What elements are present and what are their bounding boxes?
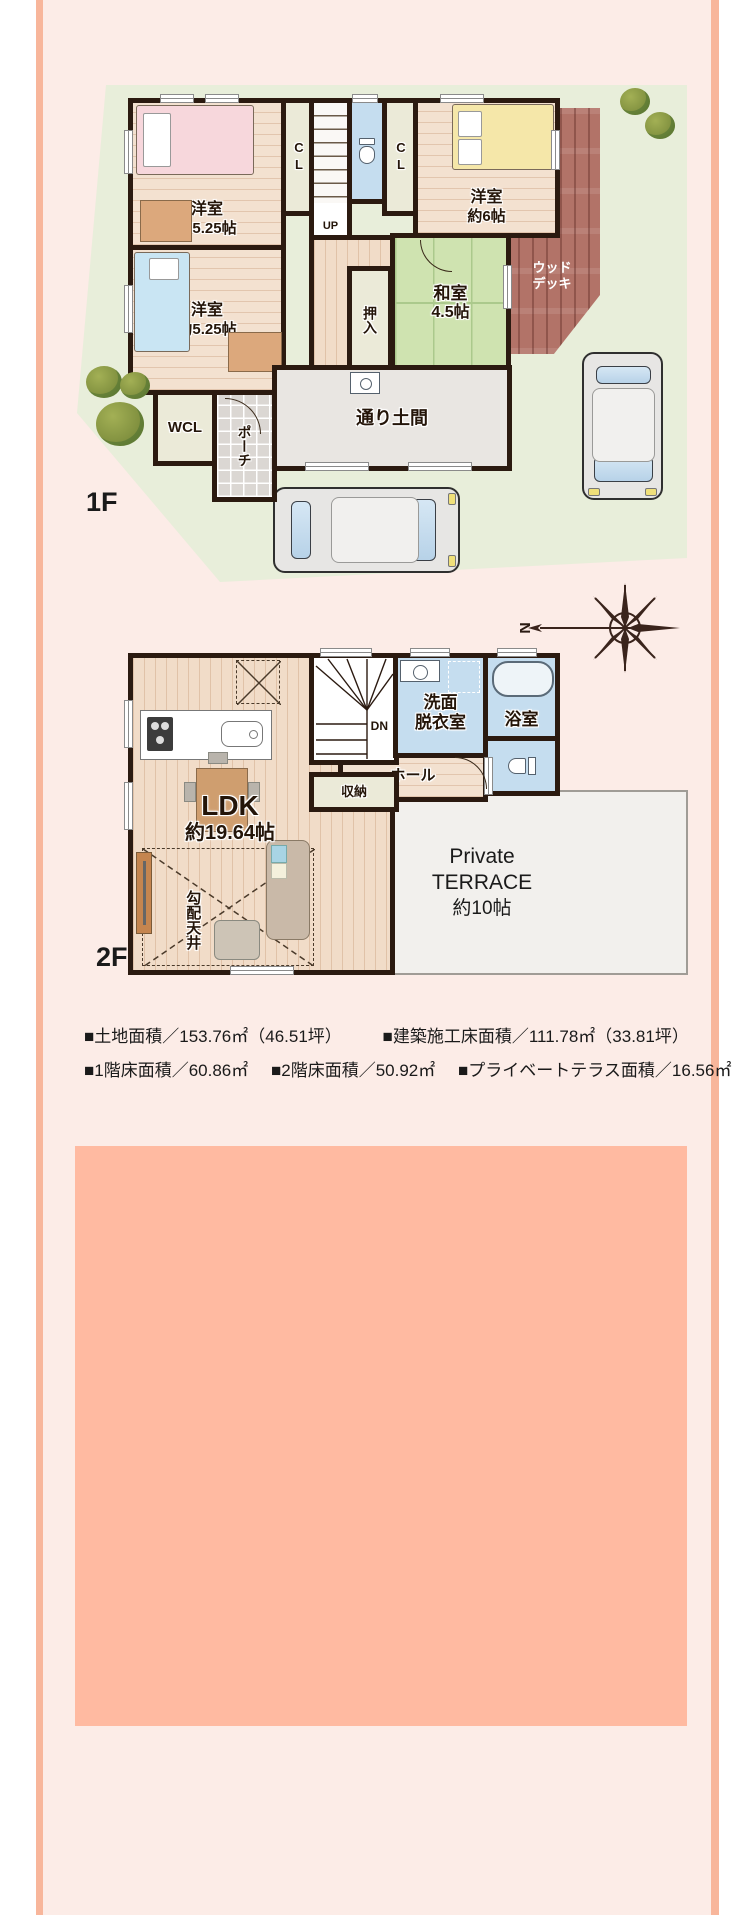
- window: [124, 782, 133, 830]
- window: [230, 966, 294, 975]
- sofa: [266, 840, 310, 940]
- sink-basin-icon: [360, 378, 372, 390]
- tree: [620, 88, 650, 115]
- spec-land-area: ■土地面積／153.76㎡（46.51坪）: [84, 1027, 342, 1046]
- bathroom-label: 浴室: [505, 710, 539, 730]
- sofa-cushion: [271, 863, 287, 879]
- bed-pillow: [458, 111, 482, 137]
- car-headlight: [645, 488, 657, 496]
- car-roof: [592, 388, 655, 462]
- spec-terrace-area: ■プライベートテラス面積／16.56㎡: [458, 1061, 731, 1080]
- wood-deck-label-line1: ウッド: [504, 260, 600, 276]
- spec-2f-floor-area: ■2階床面積／50.92㎡: [271, 1061, 435, 1080]
- terrace-label-line2: TERRACE: [407, 870, 557, 896]
- car-vertical: [582, 352, 663, 500]
- burner-icon: [156, 736, 164, 744]
- spec-1f-floor-area: ■1階床面積／60.86㎡: [84, 1061, 248, 1080]
- room-doma: 通り土間: [272, 365, 512, 471]
- sink-basin-icon: [413, 665, 428, 680]
- chair: [208, 752, 228, 764]
- window: [124, 285, 133, 333]
- private-terrace: Private TERRACE 約10帖: [393, 790, 688, 975]
- window: [503, 265, 512, 309]
- left-accent-strip: [36, 0, 43, 1915]
- room-oshiire: 押入: [347, 266, 393, 373]
- room-toilet-1f: [347, 98, 387, 204]
- compass-north-label: N: [520, 622, 534, 634]
- window: [408, 462, 472, 471]
- window: [497, 648, 537, 657]
- tree: [645, 112, 675, 139]
- area-specs: ■土地面積／153.76㎡（46.51坪） ■建築施工床面積／111.78㎡（3…: [84, 1022, 724, 1090]
- bed-yellow: [452, 104, 554, 170]
- car-roof: [331, 497, 419, 563]
- stairs-dn-label: DN: [371, 720, 388, 734]
- hatch-x: [237, 661, 281, 705]
- sloped-ceiling-label: 勾配天井: [184, 872, 201, 968]
- storage-label: 収納: [341, 785, 367, 800]
- stairs-1f: UP: [309, 98, 352, 240]
- closet-ne-label: CL: [393, 140, 408, 174]
- tree: [96, 402, 144, 446]
- washroom-sink-icon: [400, 660, 440, 682]
- doma-label: 通り土間: [356, 408, 428, 429]
- bedroom-ne-name: 洋室: [470, 189, 502, 207]
- car-headlight: [588, 488, 600, 496]
- stairs-2f-fan: [314, 658, 394, 760]
- closet-nw-label: CL: [291, 140, 306, 174]
- window: [440, 94, 484, 103]
- bed-pink: [136, 105, 254, 175]
- flyer-page: ウッド デッキ 洋室 約5.25帖 CL UP CL: [0, 0, 750, 1915]
- stairs-up-label: UP: [323, 220, 338, 233]
- washitsu-size: 4.5帖: [431, 304, 469, 322]
- bathtub-icon: [492, 661, 554, 697]
- stairs-2f: DN: [309, 653, 399, 765]
- stairs-1f-steps: [314, 103, 347, 203]
- bedroom-ne-size: 約6帖: [467, 208, 505, 225]
- room-wcl: WCL: [153, 390, 217, 466]
- spec-line-1: ■土地面積／153.76㎡（46.51坪） ■建築施工床面積／111.78㎡（3…: [84, 1022, 724, 1047]
- terrace-label-line3: 約10帖: [407, 897, 557, 921]
- bed-pillow: [143, 113, 171, 167]
- bed-blue: [134, 252, 190, 352]
- floor-label-2f: 2F: [96, 942, 128, 973]
- washitsu-name: 和室: [434, 284, 468, 304]
- room-storage-2f: 収納: [309, 772, 399, 812]
- car-rear-window: [291, 501, 311, 559]
- wood-deck-label: ウッド デッキ: [504, 260, 600, 293]
- washroom-label-line1: 洗面: [424, 693, 458, 713]
- car-horizontal: [273, 487, 460, 573]
- ldk-size: 約19.64帖: [160, 822, 300, 845]
- right-accent-strip: [711, 0, 719, 1915]
- bedroom-nw-name: 洋室: [191, 201, 223, 219]
- wood-deck-label-line2: デッキ: [504, 276, 600, 292]
- sofa-cushion: [271, 845, 287, 863]
- ceiling-hatch-square: [236, 660, 280, 704]
- tv-screen: [143, 861, 146, 925]
- bedroom-sw-name: 洋室: [191, 302, 223, 320]
- burner-icon: [151, 722, 159, 730]
- window: [124, 700, 133, 748]
- car-rear-window: [596, 366, 651, 384]
- window: [205, 94, 239, 103]
- window: [305, 462, 369, 471]
- car-headlight: [448, 555, 456, 567]
- window: [320, 648, 372, 657]
- washroom-label-line2: 脱衣室: [415, 713, 466, 733]
- ottoman: [214, 920, 260, 960]
- ldk-name: LDK: [160, 790, 300, 822]
- tv-board: [136, 852, 152, 934]
- bed-pillow: [149, 258, 179, 280]
- window: [160, 94, 194, 103]
- oshiire-label: 押入: [362, 306, 378, 334]
- toilet-bowl-icon: [508, 758, 526, 774]
- window: [352, 94, 378, 103]
- terrace-label: Private TERRACE 約10帖: [407, 844, 557, 920]
- floor-label-1f: 1F: [86, 487, 118, 518]
- toilet-tank: [528, 757, 536, 775]
- room-toilet-2f: [483, 736, 560, 796]
- wcl-label: WCL: [168, 419, 202, 436]
- car-headlight: [448, 493, 456, 505]
- door-opening: [484, 757, 493, 795]
- toilet-bowl-icon: [359, 146, 375, 164]
- bed-pillow: [458, 139, 482, 165]
- stove-icon: [147, 717, 173, 751]
- doma-sink-icon: [350, 372, 380, 394]
- toilet-tank: [359, 138, 375, 145]
- burner-icon: [161, 722, 169, 730]
- drain-icon: [249, 730, 258, 739]
- spec-line-2: ■1階床面積／60.86㎡ ■2階床面積／50.92㎡ ■プライベートテラス面積…: [84, 1056, 724, 1081]
- window: [551, 130, 560, 170]
- spec-construction-floor-area: ■建築施工床面積／111.78㎡（33.81坪）: [383, 1027, 689, 1046]
- tree: [120, 372, 150, 399]
- ldk-label-group: LDK 約19.64帖: [160, 790, 300, 845]
- desk-nw: [140, 200, 192, 242]
- terrace-label-line1: Private: [407, 844, 557, 870]
- kitchen-counter: [140, 710, 272, 760]
- window: [410, 648, 450, 657]
- kitchen-sink-icon: [221, 721, 263, 747]
- bottom-photo-panel: [75, 1146, 687, 1726]
- window: [124, 130, 133, 174]
- washer-space-dashed: [448, 661, 480, 693]
- tree: [86, 366, 122, 398]
